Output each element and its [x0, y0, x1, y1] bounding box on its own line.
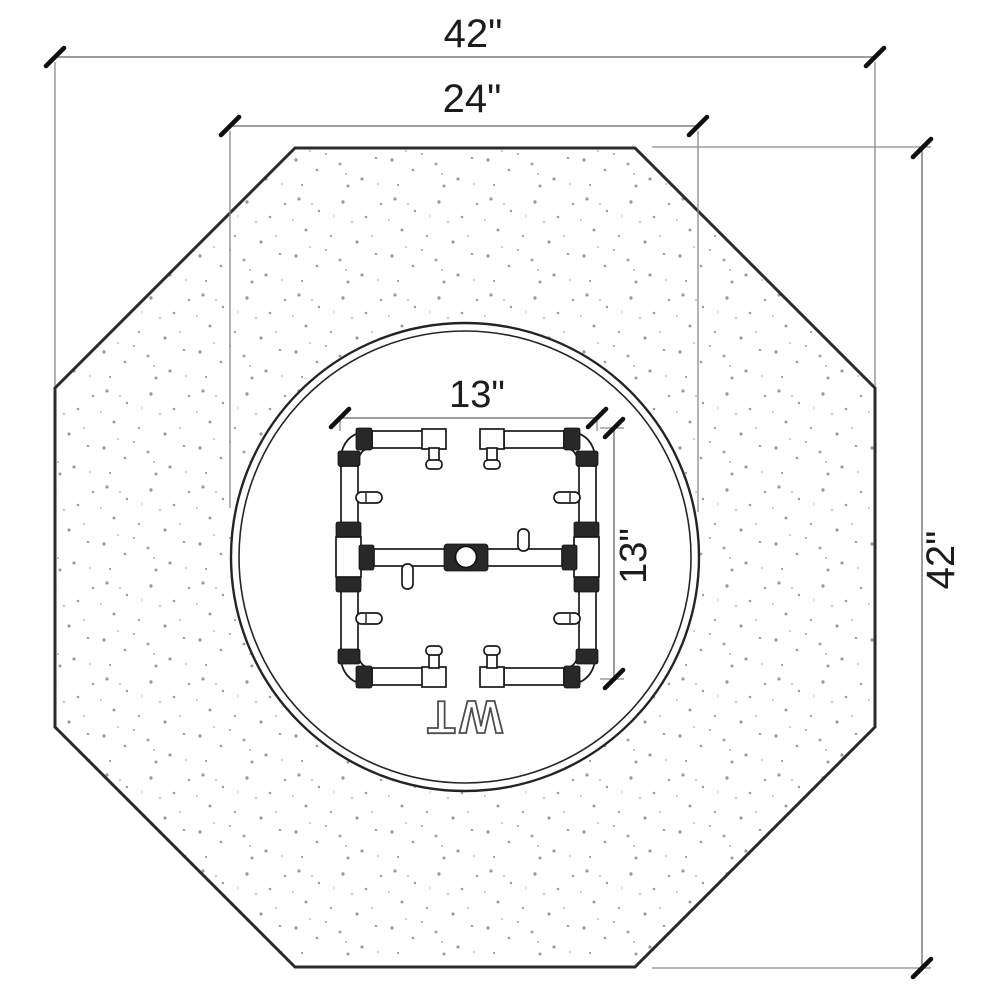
- burner-gas-inlet: [444, 544, 488, 571]
- dim-label-burner-depth: 13": [613, 528, 655, 584]
- dim-label-burner-width: 13": [449, 374, 505, 416]
- technical-drawing-page: WT 42" 24" 42" 13": [0, 0, 1000, 1000]
- watermark-text: WT: [423, 691, 503, 743]
- dim-label-bowl-diameter: 24": [443, 77, 502, 121]
- dim-label-overall-height: 42": [919, 531, 963, 590]
- dim-label-overall-width: 42": [444, 12, 503, 56]
- fire-pit-top-view-drawing: WT 42" 24" 42" 13": [0, 0, 1000, 1000]
